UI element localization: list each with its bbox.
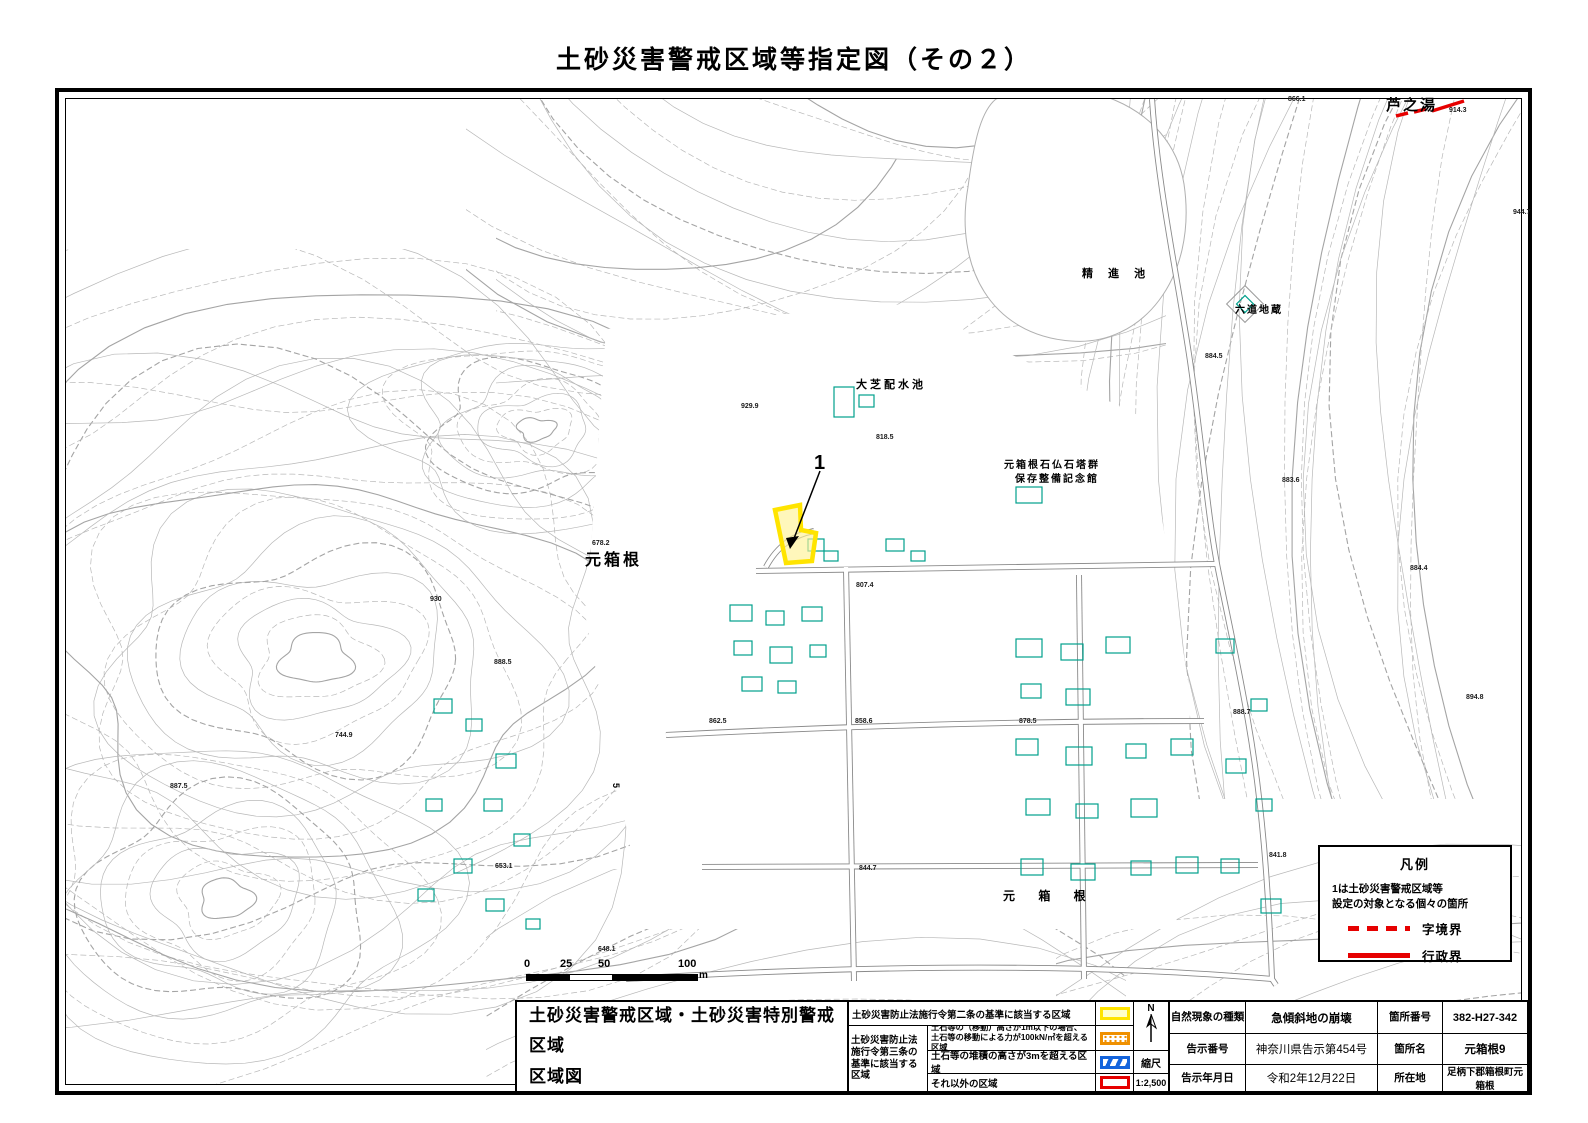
yellow-area-swatch — [1100, 1007, 1130, 1020]
header-site-name: 箇所名 — [1377, 1033, 1442, 1064]
map-frame — [55, 88, 1532, 1095]
page-title: 土砂災害警戒区域等指定図（その２） — [0, 40, 1588, 76]
swatch-cell-orange — [1095, 1025, 1133, 1050]
header-notice-number: 告示番号 — [1168, 1033, 1245, 1064]
scale-tick-50: 50 — [598, 958, 610, 970]
value-site-name: 元箱根9 — [1442, 1033, 1527, 1064]
map-sheet-title-line2: 区域図 — [529, 1062, 583, 1091]
title-block-table: 土砂災害警戒区域・土砂災害特別警戒区域 区域図 土砂災害防止法施行令第二条の基準… — [515, 1000, 1529, 1093]
scale-bar-graphic — [526, 974, 698, 981]
scale-bar: 0 25 50 100 m — [518, 958, 718, 994]
scale-tick-100: 100 — [678, 958, 696, 970]
map-sheet-title: 土砂災害警戒区域・土砂災害特別警戒区域 区域図 — [517, 1002, 847, 1091]
legend-row4-text: それ以外の区域 — [927, 1073, 1095, 1091]
scale-tick-25: 25 — [560, 958, 572, 970]
dashed-red-line-sample — [1348, 926, 1410, 931]
swatch-cell-blue — [1095, 1050, 1133, 1073]
dashed-line-label: 字境界 — [1422, 919, 1463, 938]
orange-dotted-swatch — [1100, 1032, 1130, 1045]
swatch-cell-red — [1095, 1073, 1133, 1091]
legend-note: 1は土砂災害警戒区域等 設定の対象となる個々の箇所 — [1332, 882, 1510, 911]
blue-hatched-swatch — [1100, 1056, 1130, 1069]
header-site-number: 箇所番号 — [1377, 1002, 1442, 1033]
scale-ratio: 1:2,500 — [1133, 1073, 1168, 1091]
header-notice-date: 告示年月日 — [1168, 1064, 1245, 1091]
legend-group-label: 土砂災害防止法 施行令第三条の 基準に該当する 区域 — [847, 1025, 927, 1091]
open-area — [586, 304, 1191, 929]
value-site-number: 382-H27-342 — [1442, 1002, 1527, 1033]
swatch-cell-yellow — [1095, 1002, 1133, 1025]
solid-red-line-sample — [1348, 953, 1410, 958]
legend-row2-text: 土石等の（移動）高さが1m以下の場合、 土石等の移動による力が100kN/㎡を超… — [927, 1025, 1095, 1050]
scale-word: 縮尺 — [1133, 1050, 1168, 1073]
value-phenomenon: 急傾斜地の崩壊 — [1245, 1002, 1377, 1033]
legend-row3-text: 土石等の堆積の高さが3mを超える区域 — [927, 1050, 1095, 1073]
scale-unit: m — [699, 970, 708, 981]
north-label: N — [1147, 1004, 1154, 1014]
map-sheet-title-line1: 土砂災害警戒区域・土砂災害特別警戒区域 — [529, 1002, 847, 1062]
legend-title: 凡例 — [1320, 854, 1510, 873]
solid-line-label: 行政界 — [1422, 946, 1463, 965]
value-location: 足柄下郡箱根町元箱根 — [1442, 1064, 1527, 1091]
north-arrow: N — [1133, 1002, 1168, 1050]
value-notice-number: 神奈川県告示第454号 — [1245, 1033, 1377, 1064]
north-arrow-icon — [1143, 1014, 1159, 1044]
header-phenomenon: 自然現象の種類 — [1168, 1002, 1245, 1033]
value-notice-date: 令和2年12月22日 — [1245, 1064, 1377, 1091]
red-outline-swatch — [1100, 1076, 1130, 1089]
legend-box: 凡例 1は土砂災害警戒区域等 設定の対象となる個々の箇所 字境界 行政界 — [1318, 845, 1512, 962]
boundary-lines-red — [1396, 101, 1464, 116]
map-canvas — [65, 98, 1522, 1085]
legend-row1-text: 土砂災害防止法施行令第二条の基準に該当する区域 — [847, 1002, 1095, 1025]
header-location: 所在地 — [1377, 1064, 1442, 1091]
topographic-map — [66, 99, 1521, 1084]
scale-tick-0: 0 — [524, 958, 530, 970]
